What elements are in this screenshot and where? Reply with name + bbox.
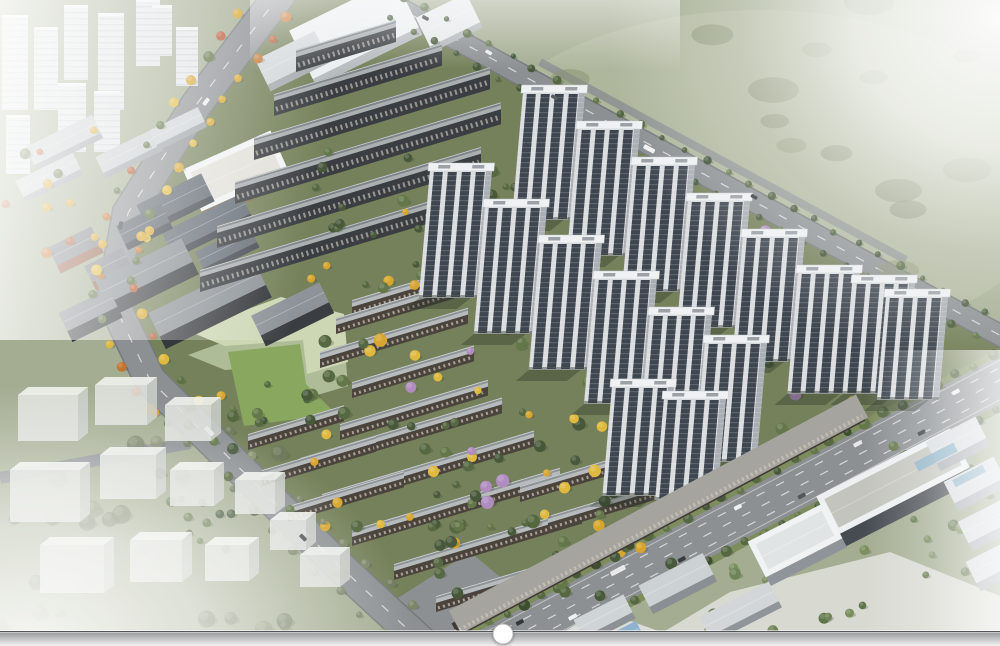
scrubber-handle[interactable] [493, 624, 514, 645]
rendering-viewer [0, 0, 1000, 646]
aerial-site-rendering [0, 0, 1000, 646]
